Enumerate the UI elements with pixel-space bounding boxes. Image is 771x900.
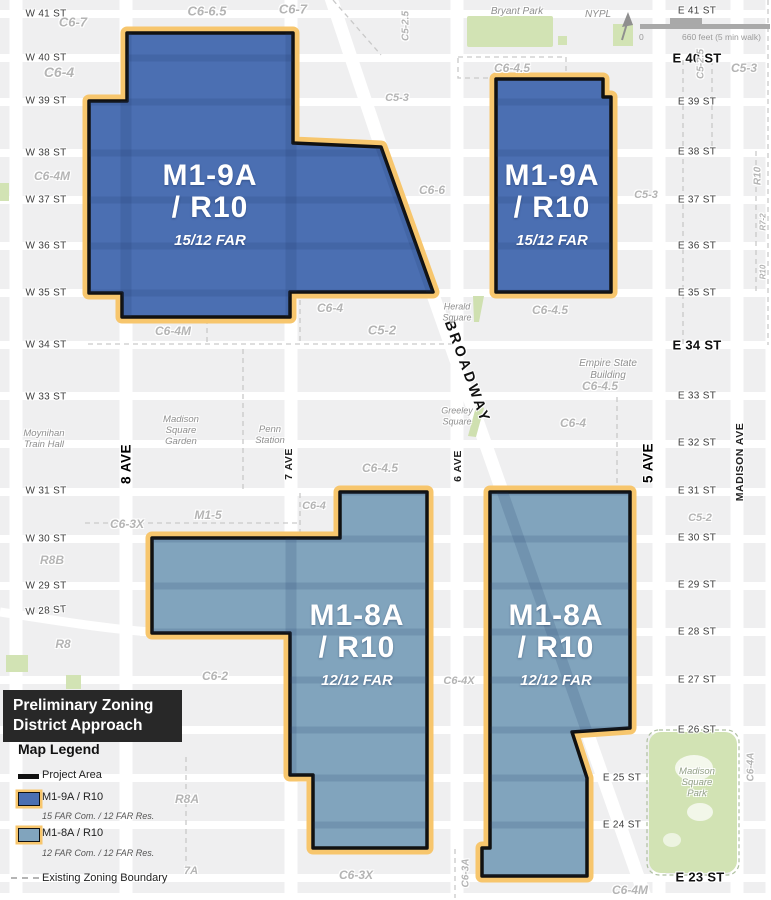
zoning-district-label: C6-4 bbox=[44, 64, 74, 80]
street-label-west: W 31 ST bbox=[26, 486, 67, 497]
street-label-east: E 24 ST bbox=[603, 820, 641, 831]
zoning-district-label: C6-4 bbox=[302, 500, 326, 512]
legend-swatch-m19a bbox=[18, 792, 40, 806]
zoning-district-label: R8A bbox=[175, 792, 199, 806]
place-label: Empire StateBuilding bbox=[579, 358, 637, 382]
place-label: MadisonSquareGarden bbox=[163, 414, 199, 448]
zoning-district-label: C6-6 bbox=[419, 183, 445, 197]
scale-distance-label: 660 feet (5 min walk) bbox=[682, 32, 761, 42]
zoning-district-label: C5-2.5 bbox=[696, 49, 707, 79]
avenue-label: 8 AVE bbox=[119, 444, 134, 484]
place-label: HeraldSquare bbox=[442, 301, 471, 322]
legend-far-m18a: 12 FAR Com. / 12 FAR Res. bbox=[42, 848, 154, 858]
place-label: MoynihanTrain Hall bbox=[23, 428, 64, 450]
legend-swatch-existing-boundary bbox=[11, 877, 39, 879]
zoning-district-label: C6-4.5 bbox=[362, 461, 398, 475]
legend-label-project-area: Project Area bbox=[42, 769, 102, 781]
street-label-east: E 32 ST bbox=[678, 438, 716, 449]
place-label: NYPL bbox=[585, 9, 611, 21]
legend-heading: Map Legend bbox=[18, 741, 100, 757]
legend-swatch-project-area bbox=[18, 774, 39, 779]
street-label-east: E 25 ST bbox=[603, 773, 641, 784]
street-label-east: E 29 ST bbox=[678, 580, 716, 591]
zoning-district-label: C6-4X bbox=[443, 675, 474, 687]
street-label-west: W 29 ST bbox=[26, 581, 67, 592]
street-label-east: E 39 ST bbox=[678, 97, 716, 108]
zoning-district-label: C6-6.5 bbox=[187, 4, 226, 19]
zoning-district-label: C6-7 bbox=[59, 15, 87, 30]
zoning-district-label: C5-3 bbox=[385, 92, 409, 104]
street-label-west: W 38 ST bbox=[26, 148, 67, 159]
street-label-east: E 28 ST bbox=[678, 627, 716, 638]
zoning-district-label: C6-7 bbox=[279, 2, 307, 17]
street-label-east: E 26 ST bbox=[678, 725, 716, 736]
avenue-label: 6 AVE bbox=[452, 450, 464, 482]
legend-title-line2: District Approach bbox=[13, 716, 182, 736]
district-label: M1-8A/ R1012/12 FAR bbox=[309, 600, 404, 689]
street-label-east: E 37 ST bbox=[678, 195, 716, 206]
zoning-district-label: R8B bbox=[40, 553, 64, 567]
street-label-west: W 28 ST bbox=[25, 604, 67, 618]
legend-label-existing-boundary: Existing Zoning Boundary bbox=[42, 872, 167, 884]
zoning-district-label: C6-4.5 bbox=[532, 303, 568, 317]
zoning-district-label: C6-3X bbox=[339, 868, 373, 882]
place-label: PennStation bbox=[255, 424, 285, 446]
zoning-district-label: R10 bbox=[759, 265, 768, 280]
avenue-label: 7 AVE bbox=[283, 448, 295, 480]
district-label: M1-9A/ R1015/12 FAR bbox=[162, 160, 257, 249]
street-label-east: E 31 ST bbox=[678, 486, 716, 497]
zoning-district-label: C6-4.5 bbox=[494, 61, 530, 75]
zoning-district-label: R7-2 bbox=[759, 213, 768, 230]
district-label: M1-8A/ R1012/12 FAR bbox=[508, 600, 603, 689]
legend-swatch-m18a bbox=[18, 828, 40, 842]
zoning-district-label: C6-2 bbox=[202, 669, 228, 683]
zoning-district-label: C5-2.5 bbox=[401, 11, 412, 41]
street-label-east: E 23 ST bbox=[675, 870, 724, 885]
zoning-district-label: M1-5 bbox=[194, 508, 221, 522]
zoning-map: W 41 STW 40 STW 39 STW 38 STW 37 STW 36 … bbox=[0, 0, 771, 900]
street-label-east: E 33 ST bbox=[678, 391, 716, 402]
zoning-district-label: C6-4M bbox=[612, 883, 648, 897]
zoning-district-label: C6-4M bbox=[155, 324, 191, 338]
street-label-east: E 36 ST bbox=[678, 241, 716, 252]
zoning-district-label: C6-3X bbox=[110, 517, 144, 531]
zoning-district-label: C5-2 bbox=[688, 512, 712, 524]
zoning-district-label: C5-3 bbox=[634, 189, 658, 201]
zoning-district-label: R8 bbox=[55, 637, 70, 651]
zoning-district-label: C6-4A bbox=[746, 753, 757, 782]
zoning-district-label: C5-2 bbox=[368, 323, 396, 338]
zoning-district-label: C6-3A bbox=[461, 859, 472, 888]
legend-label-m18a: M1-8A / R10 bbox=[42, 827, 103, 839]
street-label-west: W 33 ST bbox=[26, 392, 67, 403]
avenue-label: 5 AVE bbox=[641, 443, 656, 483]
avenue-label: MADISON AVE bbox=[734, 423, 746, 501]
street-label-east: E 38 ST bbox=[678, 147, 716, 158]
zoning-district-label: R10 bbox=[753, 167, 764, 185]
district-label: M1-9A/ R1015/12 FAR bbox=[504, 160, 599, 249]
place-label: Bryant Park bbox=[491, 6, 543, 18]
street-label-east: E 41 ST bbox=[678, 6, 716, 17]
street-label-west: W 34 ST bbox=[26, 340, 67, 351]
place-label: MadisonSquarePark bbox=[679, 766, 715, 800]
zoning-district-label: C5-3 bbox=[731, 61, 757, 75]
zoning-district-label: C6-4M bbox=[34, 169, 70, 183]
street-label-west: W 37 ST bbox=[26, 195, 67, 206]
place-label: GreeleySquare bbox=[441, 405, 473, 426]
street-label-east: E 35 ST bbox=[678, 288, 716, 299]
street-label-east: E 34 ST bbox=[672, 338, 721, 353]
street-label-west: W 36 ST bbox=[26, 241, 67, 252]
street-label-west: W 30 ST bbox=[26, 534, 67, 545]
street-label-west: W 40 ST bbox=[26, 53, 67, 64]
street-label-east: E 30 ST bbox=[678, 533, 716, 544]
zoning-district-label: 7A bbox=[184, 865, 198, 877]
street-label-east: E 27 ST bbox=[678, 675, 716, 686]
street-label-west: W 35 ST bbox=[26, 288, 67, 299]
legend-title: Preliminary Zoning District Approach bbox=[3, 690, 182, 742]
zoning-district-label: C6-4 bbox=[317, 301, 343, 315]
legend-title-line1: Preliminary Zoning bbox=[13, 696, 182, 716]
map-labels: W 41 STW 40 STW 39 STW 38 STW 37 STW 36 … bbox=[0, 0, 771, 900]
scale-zero: 0 bbox=[639, 32, 644, 42]
legend-label-m19a: M1-9A / R10 bbox=[42, 791, 103, 803]
street-label-west: W 39 ST bbox=[26, 96, 67, 107]
zoning-district-label: C6-4 bbox=[560, 416, 586, 430]
legend-far-m19a: 15 FAR Com. / 12 FAR Res. bbox=[42, 811, 154, 821]
